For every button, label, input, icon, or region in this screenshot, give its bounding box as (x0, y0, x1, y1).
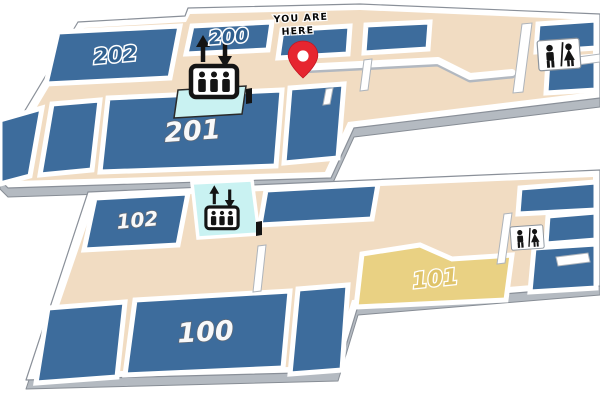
room-202-label: 202 (93, 41, 139, 69)
room-200-label: 200 (208, 25, 249, 50)
room-lower-left[interactable] (36, 302, 125, 383)
floor-map: 202 200 201 YOU ARE HERE (0, 0, 600, 400)
room-right-of-100[interactable] (290, 285, 348, 374)
upper-floor: 202 200 201 YOU ARE HERE (0, 4, 600, 197)
room-top-right-b[interactable] (546, 212, 596, 244)
door-mark-lower (256, 221, 262, 236)
room-top-right-a[interactable] (518, 182, 596, 214)
door-mark-upper (246, 88, 252, 104)
room-lower-left-b[interactable] (40, 100, 100, 175)
room-100-label: 100 (177, 316, 235, 350)
restroom-icon[interactable] (510, 225, 544, 251)
room-201-label: 201 (163, 114, 221, 149)
lower-floor: 102 101 100 (26, 170, 600, 389)
room-strip-right[interactable] (364, 22, 430, 53)
restroom-icon[interactable] (537, 38, 581, 71)
room-bottom-right[interactable] (530, 244, 596, 292)
room-102-label: 102 (116, 206, 160, 234)
room-101-label: 101 (411, 265, 459, 295)
you-are-here-line2: HERE (281, 25, 314, 38)
room-mid-top[interactable] (260, 184, 378, 225)
floor-map-canvas: 202 200 201 YOU ARE HERE (0, 0, 600, 400)
room-lower-right[interactable] (284, 84, 344, 163)
